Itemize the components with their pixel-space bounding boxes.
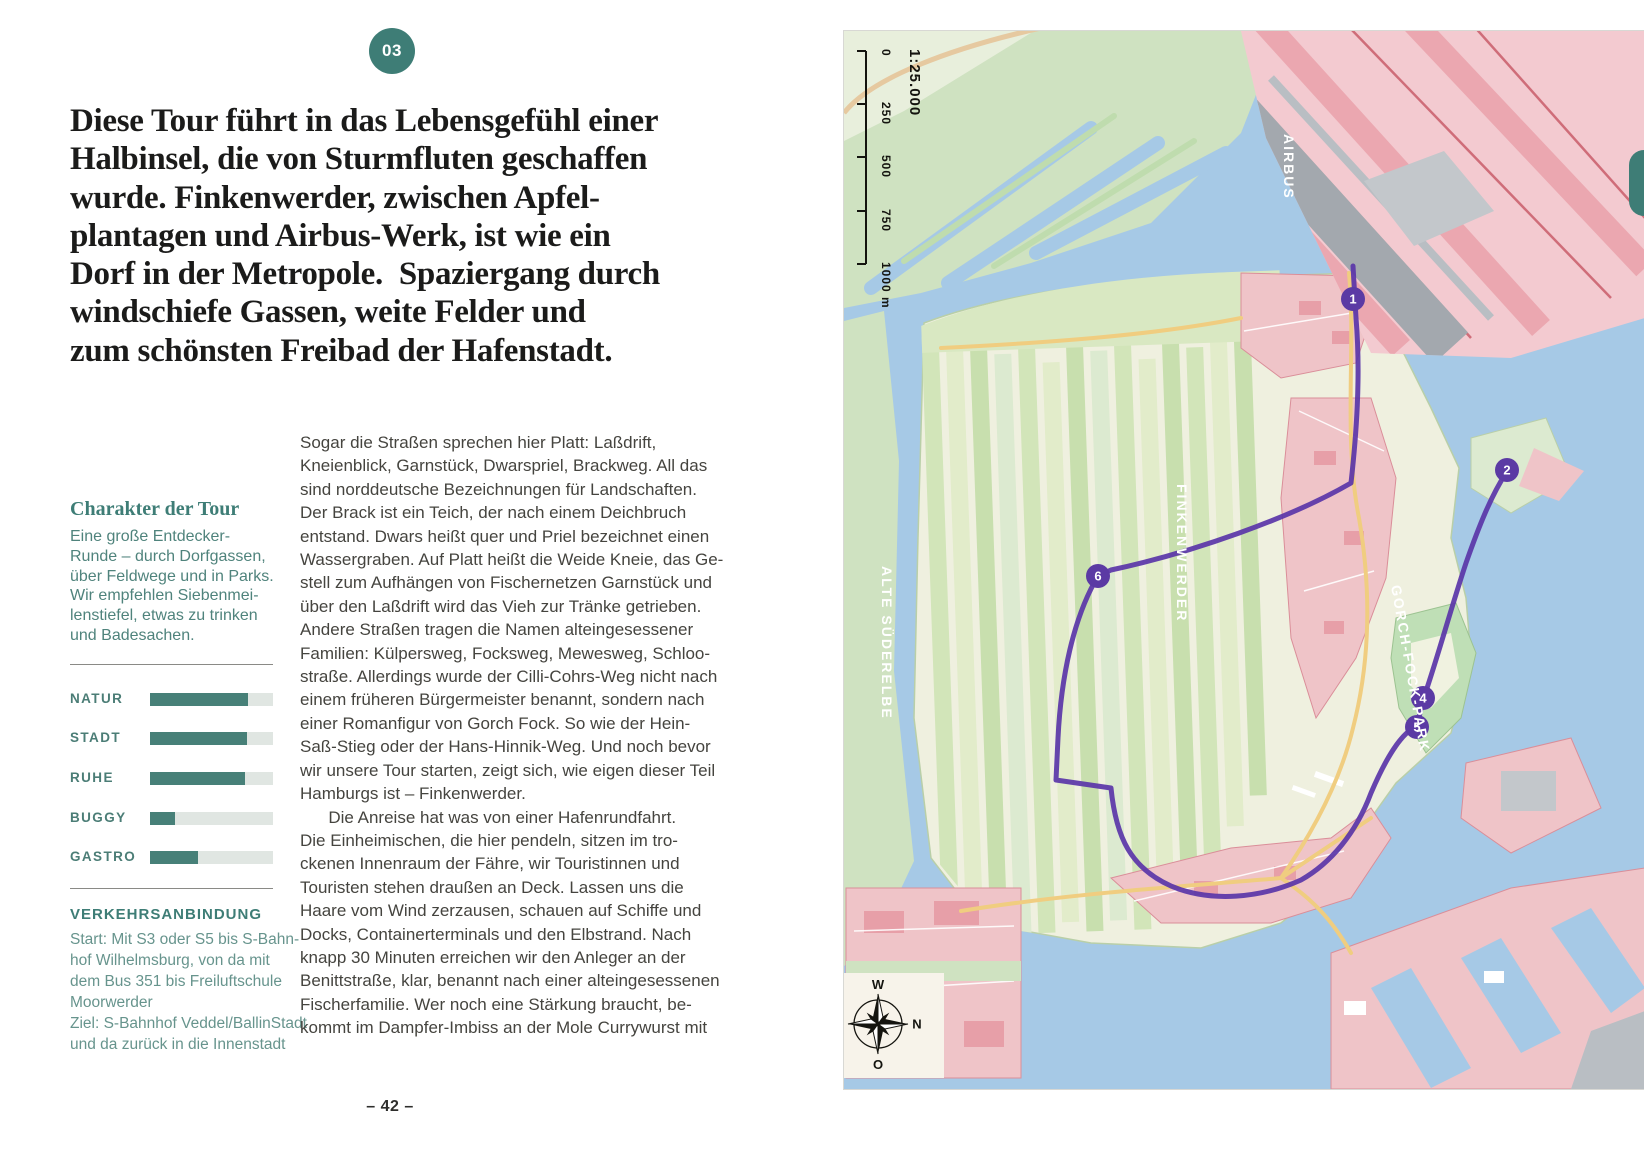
- svg-text:750: 750: [879, 209, 893, 232]
- transport-title: VERKEHRSANBINDUNG: [70, 906, 262, 923]
- rating-label: BUGGY: [70, 811, 127, 825]
- rating-fill: [150, 693, 248, 706]
- character-text: Eine große Entdecker-Runde – durch Dorfg…: [70, 527, 274, 646]
- tour-map: 1 2 4 5 6 AIRBUS FINKENWERDER ALTE SÜDER…: [843, 30, 1644, 1090]
- svg-text:1000 m: 1000 m: [879, 262, 893, 309]
- rating-bar: [150, 693, 273, 706]
- map-label-alte-suederelbe: ALTE SÜDERELBE: [879, 566, 895, 720]
- svg-text:6: 6: [1094, 569, 1101, 584]
- rating-label: NATUR: [70, 692, 123, 706]
- page-title: Diese Tour führt in das Lebensgefühl ein…: [70, 102, 690, 370]
- rating-bar: [150, 772, 273, 785]
- map-image: 1 2 4 5 6 AIRBUS FINKENWERDER ALTE SÜDER…: [844, 31, 1644, 1089]
- transport-info: Start: Mit S3 oder S5 bis S-Bahn-hof Wil…: [70, 929, 307, 1055]
- character-title: Charakter der Tour: [70, 498, 274, 521]
- tour-character-box: Charakter der Tour Eine große Entdecker-…: [70, 498, 274, 646]
- svg-text:N: N: [912, 1017, 921, 1032]
- rating-bar: [150, 732, 273, 745]
- divider: [70, 888, 273, 889]
- page-number: – 42 –: [300, 1098, 480, 1116]
- rating-fill: [150, 812, 175, 825]
- svg-text:W: W: [872, 977, 885, 992]
- svg-text:500: 500: [879, 155, 893, 178]
- rating-label: GASTRO: [70, 850, 136, 864]
- rating-row-ruhe: RUHE: [70, 771, 273, 785]
- svg-text:2: 2: [1503, 463, 1510, 478]
- rating-label: RUHE: [70, 771, 114, 785]
- rating-label: STADT: [70, 731, 121, 745]
- svg-text:250: 250: [879, 102, 893, 125]
- chapter-edge-tab: [1629, 150, 1644, 216]
- rating-row-buggy: BUGGY: [70, 811, 273, 825]
- body-text: Sogar die Straßen sprechen hier Platt: L…: [300, 431, 745, 1040]
- rating-row-gastro: GASTRO: [70, 850, 273, 864]
- tour-number-badge: 03: [369, 28, 415, 74]
- svg-text:0: 0: [879, 49, 893, 57]
- rating-fill: [150, 732, 247, 745]
- map-label-finkenwerder: FINKENWERDER: [1174, 484, 1190, 622]
- map-scale-ratio: 1:25.000: [906, 49, 923, 116]
- rating-bar: [150, 812, 273, 825]
- waypoint-marker-6: 6: [1086, 564, 1110, 588]
- svg-text:O: O: [873, 1057, 883, 1072]
- rating-row-stadt: STADT: [70, 731, 273, 745]
- waypoint-marker-1: 1: [1341, 287, 1365, 311]
- rating-bar: [150, 851, 273, 864]
- guidebook-spread: 03 Diese Tour führt in das Lebensgefühl …: [0, 0, 1644, 1162]
- rating-row-natur: NATUR: [70, 692, 273, 706]
- divider: [70, 664, 273, 665]
- waypoint-marker-2: 2: [1495, 458, 1519, 482]
- rating-fill: [150, 772, 245, 785]
- rating-fill: [150, 851, 198, 864]
- svg-text:1: 1: [1349, 292, 1356, 307]
- map-label-airbus: AIRBUS: [1281, 134, 1297, 200]
